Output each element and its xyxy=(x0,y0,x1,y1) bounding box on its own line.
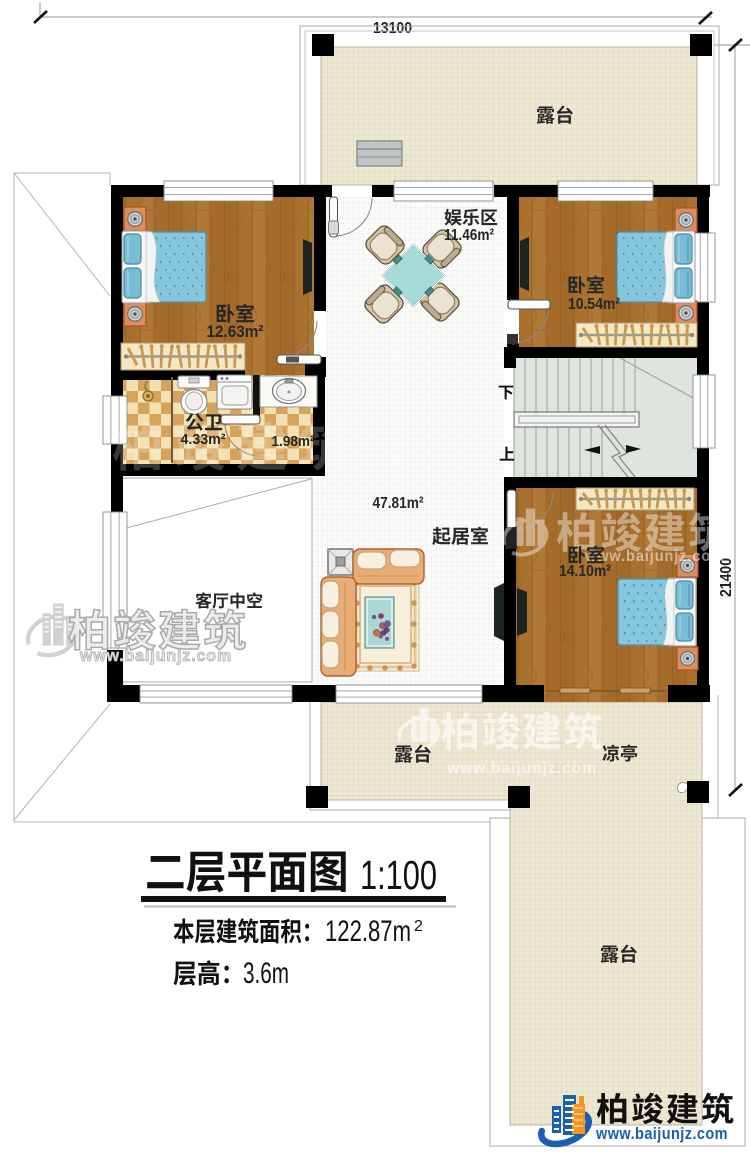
svg-text:14.10m²: 14.10m² xyxy=(559,563,611,580)
svg-text:www.baijunjz.com: www.baijunjz.com xyxy=(595,1125,728,1143)
svg-text:1:100: 1:100 xyxy=(360,852,437,898)
svg-text:122.87m: 122.87m xyxy=(325,915,411,948)
svg-text:1.98m²: 1.98m² xyxy=(272,433,315,450)
svg-text:4.33m²: 4.33m² xyxy=(181,431,226,448)
svg-text:13100: 13100 xyxy=(373,20,412,37)
svg-text:3.6m: 3.6m xyxy=(243,957,289,990)
svg-text:11.46m²: 11.46m² xyxy=(444,227,494,244)
svg-text:2: 2 xyxy=(414,918,423,935)
svg-text:www.baijunjz.com: www.baijunjz.com xyxy=(79,646,232,665)
svg-text:www.baijunjz.com: www.baijunjz.com xyxy=(446,760,597,777)
svg-text:12.63m²: 12.63m² xyxy=(207,322,264,341)
svg-text:10.54m²: 10.54m² xyxy=(568,296,620,313)
svg-text:47.81m²: 47.81m² xyxy=(373,495,424,512)
